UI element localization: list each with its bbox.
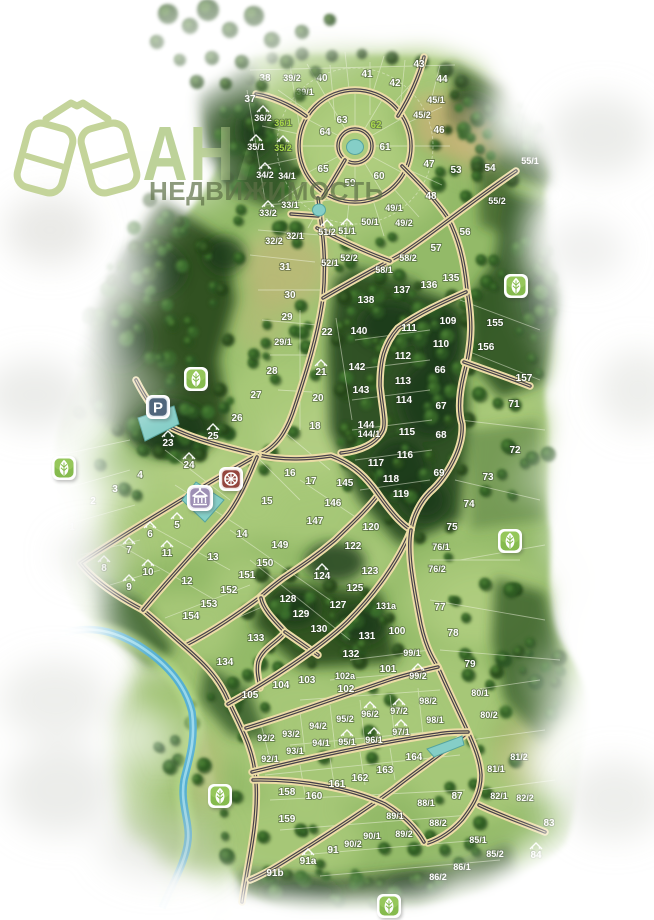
svg-text:124: 124: [314, 571, 331, 582]
svg-text:32/1: 32/1: [286, 231, 304, 241]
svg-text:131: 131: [359, 631, 376, 642]
svg-text:92/1: 92/1: [261, 754, 279, 764]
svg-text:9: 9: [126, 582, 132, 593]
svg-text:137: 137: [394, 285, 411, 296]
svg-text:5: 5: [174, 520, 180, 531]
svg-text:16: 16: [284, 468, 296, 479]
svg-text:120: 120: [363, 522, 380, 533]
svg-text:91: 91: [327, 845, 339, 856]
svg-text:49/2: 49/2: [395, 218, 413, 228]
svg-text:52/1: 52/1: [321, 258, 339, 268]
svg-text:98/2: 98/2: [419, 696, 437, 706]
svg-text:31: 31: [279, 262, 291, 273]
svg-text:94/1: 94/1: [312, 738, 330, 748]
svg-text:72: 72: [509, 445, 521, 456]
svg-text:96/2: 96/2: [361, 709, 379, 719]
svg-text:25: 25: [207, 431, 219, 442]
svg-text:23: 23: [162, 438, 174, 449]
svg-text:101: 101: [380, 664, 397, 675]
svg-text:89/2: 89/2: [395, 829, 413, 839]
svg-text:51/1: 51/1: [338, 226, 356, 236]
svg-text:155: 155: [487, 318, 504, 329]
svg-text:56: 56: [459, 227, 471, 238]
svg-text:100: 100: [389, 626, 406, 637]
svg-text:163: 163: [377, 765, 394, 776]
svg-text:99/1: 99/1: [403, 648, 421, 658]
svg-text:74: 74: [463, 499, 475, 510]
svg-text:154: 154: [183, 611, 200, 622]
svg-text:111: 111: [401, 323, 417, 334]
svg-text:81/1: 81/1: [487, 764, 505, 774]
svg-text:94/2: 94/2: [309, 721, 327, 731]
svg-text:88/2: 88/2: [429, 818, 447, 828]
svg-text:146: 146: [325, 498, 342, 509]
svg-text:76/1: 76/1: [432, 542, 450, 552]
svg-text:127: 127: [330, 600, 347, 611]
svg-text:82/1: 82/1: [490, 791, 508, 801]
svg-text:11: 11: [162, 548, 173, 559]
svg-text:49/1: 49/1: [385, 203, 403, 213]
svg-text:20: 20: [312, 393, 324, 404]
svg-text:109: 109: [440, 316, 457, 327]
svg-text:159: 159: [279, 814, 296, 825]
svg-text:152: 152: [221, 585, 238, 596]
svg-text:105: 105: [242, 690, 259, 701]
svg-text:58/2: 58/2: [399, 253, 417, 263]
svg-text:68: 68: [435, 430, 447, 441]
svg-text:125: 125: [347, 583, 364, 594]
svg-text:93/2: 93/2: [282, 729, 300, 739]
svg-text:89/1: 89/1: [386, 811, 404, 821]
svg-text:93/1: 93/1: [286, 746, 304, 756]
svg-text:P: P: [153, 400, 163, 417]
svg-text:29: 29: [281, 312, 293, 323]
svg-text:128: 128: [280, 594, 297, 605]
svg-text:78: 78: [447, 628, 459, 639]
svg-text:133: 133: [248, 633, 265, 644]
svg-text:66: 66: [434, 365, 446, 376]
svg-text:29/1: 29/1: [274, 337, 292, 347]
svg-text:30: 30: [284, 290, 296, 301]
svg-text:41: 41: [361, 69, 373, 80]
svg-text:71: 71: [508, 399, 520, 410]
svg-text:158: 158: [279, 787, 296, 798]
svg-text:135: 135: [443, 273, 460, 284]
svg-text:85/1: 85/1: [469, 835, 487, 845]
svg-text:21: 21: [315, 367, 327, 378]
svg-text:14: 14: [236, 529, 248, 540]
svg-text:153: 153: [201, 599, 218, 610]
svg-text:103: 103: [299, 675, 316, 686]
svg-text:150: 150: [257, 558, 274, 569]
svg-text:142: 142: [349, 362, 366, 373]
svg-text:50/1: 50/1: [361, 217, 379, 227]
svg-text:161: 161: [329, 779, 346, 790]
svg-text:115: 115: [399, 427, 416, 438]
svg-text:80/1: 80/1: [471, 688, 489, 698]
svg-text:69: 69: [433, 468, 445, 479]
svg-text:86/1: 86/1: [453, 862, 471, 872]
svg-text:77: 77: [434, 602, 446, 613]
svg-text:24: 24: [183, 460, 195, 471]
svg-text:122: 122: [345, 541, 362, 552]
svg-text:118: 118: [383, 474, 400, 485]
svg-text:140: 140: [351, 326, 368, 337]
svg-text:45/1: 45/1: [427, 95, 445, 105]
svg-text:91a: 91a: [300, 856, 317, 867]
svg-text:43: 43: [413, 59, 425, 70]
svg-text:57: 57: [430, 243, 442, 254]
svg-text:114: 114: [396, 395, 413, 406]
svg-text:144/1: 144/1: [358, 429, 381, 439]
svg-text:53: 53: [450, 165, 462, 176]
svg-text:157: 157: [516, 373, 533, 384]
svg-text:113: 113: [395, 376, 412, 387]
svg-text:26: 26: [231, 413, 243, 424]
svg-text:48: 48: [425, 191, 437, 202]
svg-text:97/1: 97/1: [392, 727, 410, 737]
svg-text:134: 134: [217, 657, 234, 668]
svg-text:147: 147: [307, 516, 324, 527]
svg-text:145: 145: [337, 478, 354, 489]
svg-text:99/2: 99/2: [409, 671, 427, 681]
svg-text:132: 132: [343, 649, 360, 660]
svg-text:91b: 91b: [266, 868, 283, 879]
svg-text:27: 27: [250, 390, 262, 401]
svg-text:102a: 102a: [335, 671, 356, 681]
svg-text:80/2: 80/2: [480, 710, 498, 720]
svg-text:98/1: 98/1: [426, 715, 444, 725]
svg-text:129: 129: [293, 609, 310, 620]
svg-text:162: 162: [352, 773, 369, 784]
svg-text:90/2: 90/2: [344, 839, 362, 849]
svg-text:119: 119: [393, 489, 410, 500]
svg-text:92/2: 92/2: [257, 733, 275, 743]
svg-text:76/2: 76/2: [428, 564, 446, 574]
svg-text:82/2: 82/2: [516, 793, 534, 803]
svg-text:85/2: 85/2: [486, 849, 504, 859]
svg-text:44: 44: [436, 74, 448, 85]
svg-text:47: 47: [423, 159, 435, 170]
svg-text:32/2: 32/2: [265, 236, 283, 246]
svg-text:95/1: 95/1: [338, 737, 356, 747]
svg-text:136: 136: [421, 280, 438, 291]
svg-text:12: 12: [181, 576, 193, 587]
svg-text:51/2: 51/2: [318, 227, 336, 237]
svg-text:6: 6: [147, 529, 153, 540]
svg-text:55/2: 55/2: [488, 196, 506, 206]
svg-text:22: 22: [321, 327, 333, 338]
svg-text:87: 87: [451, 791, 463, 802]
svg-text:117: 117: [368, 458, 385, 469]
svg-text:102: 102: [338, 684, 355, 695]
svg-text:96/1: 96/1: [365, 735, 383, 745]
svg-text:33/2: 33/2: [259, 208, 277, 218]
svg-text:88/1: 88/1: [417, 798, 435, 808]
svg-text:10: 10: [142, 567, 154, 578]
svg-text:131a: 131a: [376, 601, 397, 611]
svg-text:164: 164: [406, 752, 423, 763]
svg-text:151: 151: [239, 570, 256, 581]
svg-text:138: 138: [358, 295, 375, 306]
svg-text:79: 79: [464, 659, 476, 670]
svg-text:17: 17: [305, 476, 317, 487]
svg-text:104: 104: [273, 680, 290, 691]
svg-text:НЕДВИЖИМОСТЬ: НЕДВИЖИМОСТЬ: [149, 176, 384, 206]
svg-text:54: 54: [484, 163, 496, 174]
svg-text:18: 18: [309, 421, 321, 432]
svg-text:46: 46: [433, 125, 445, 136]
svg-text:97/2: 97/2: [390, 706, 408, 716]
svg-text:58/1: 58/1: [375, 265, 393, 275]
svg-text:73: 73: [482, 472, 494, 483]
svg-text:112: 112: [395, 351, 412, 362]
svg-text:28: 28: [266, 366, 278, 377]
svg-text:149: 149: [272, 540, 289, 551]
svg-text:156: 156: [478, 342, 495, 353]
svg-text:95/2: 95/2: [336, 714, 354, 724]
svg-text:52/2: 52/2: [340, 253, 358, 263]
svg-text:90/1: 90/1: [363, 831, 381, 841]
svg-text:143: 143: [353, 385, 370, 396]
svg-text:110: 110: [433, 339, 450, 350]
svg-text:13: 13: [207, 552, 219, 563]
svg-text:67: 67: [435, 401, 447, 412]
svg-text:61: 61: [379, 142, 391, 153]
svg-text:160: 160: [306, 791, 323, 802]
svg-text:15: 15: [261, 496, 273, 507]
svg-text:42: 42: [389, 78, 401, 89]
svg-text:116: 116: [397, 450, 414, 461]
svg-text:45/2: 45/2: [413, 110, 431, 120]
svg-text:130: 130: [311, 624, 328, 635]
svg-text:123: 123: [362, 566, 379, 577]
svg-text:75: 75: [446, 522, 458, 533]
